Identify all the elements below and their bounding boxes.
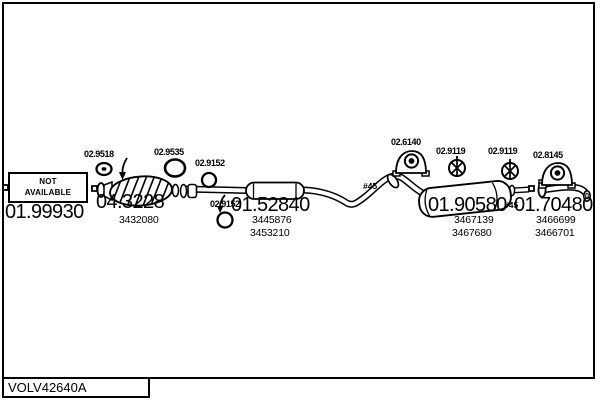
not-available-line1: NOT: [39, 177, 57, 188]
not-available-line2: AVAILABLE: [25, 188, 71, 199]
oe-number-catalytic: 3432080: [119, 214, 158, 226]
grommet-icon-b: [502, 159, 518, 179]
part-code-catalytic[interactable]: 04.3228: [96, 191, 164, 214]
connector-square-tail: [529, 186, 534, 191]
gasket-front-icon: [97, 163, 112, 175]
cat-outlet-flange-1: [173, 185, 179, 197]
oe-number-tail-1: 3466699: [536, 214, 575, 226]
not-available-box: NOT AVAILABLE: [8, 172, 88, 203]
fitting-label-clamp-a[interactable]: 02.9152: [195, 158, 225, 168]
grommet-icon-a: [449, 156, 465, 176]
fitting-label-bracket-tail[interactable]: 02.8145: [533, 150, 563, 160]
bracket-tail-icon: [539, 163, 575, 188]
bracket-mid-icon: [393, 151, 429, 176]
oe-number-centre-1: 3445876: [252, 214, 291, 226]
gasket-cat-icon: [165, 160, 185, 177]
cat-outlet-flange-2: [181, 185, 187, 198]
drawing-code-box: VOLV42640A: [2, 377, 150, 398]
pointer-arrow-front: [119, 158, 127, 180]
fitting-label-gasket-front[interactable]: 02.9518: [84, 149, 114, 159]
exhaust-diagram-page: NOT AVAILABLE 01.99930 02.9518 02.9535 0…: [0, 0, 600, 400]
drawing-code: VOLV42640A: [8, 380, 87, 395]
fitting-label-bracket-mid[interactable]: 02.6140: [391, 137, 421, 147]
clamp-ring-icon-a: [202, 173, 216, 187]
oe-number-rear-1: 3467139: [454, 214, 493, 226]
fitting-label-grommet-b[interactable]: 02.9119: [488, 146, 517, 156]
oe-number-rear-2: 3467680: [452, 227, 491, 239]
pipe-diameter-mark-a: #45: [363, 181, 377, 191]
pipe-joint-clamp: [188, 185, 197, 198]
part-code-front-pipe[interactable]: 01.99930: [5, 201, 84, 224]
fitting-label-grommet-a[interactable]: 02.9119: [436, 146, 465, 156]
oe-number-centre-2: 3453210: [250, 227, 289, 239]
fitting-label-gasket-cat[interactable]: 02.9535: [154, 147, 184, 157]
oe-number-tail-2: 3466701: [535, 227, 574, 239]
